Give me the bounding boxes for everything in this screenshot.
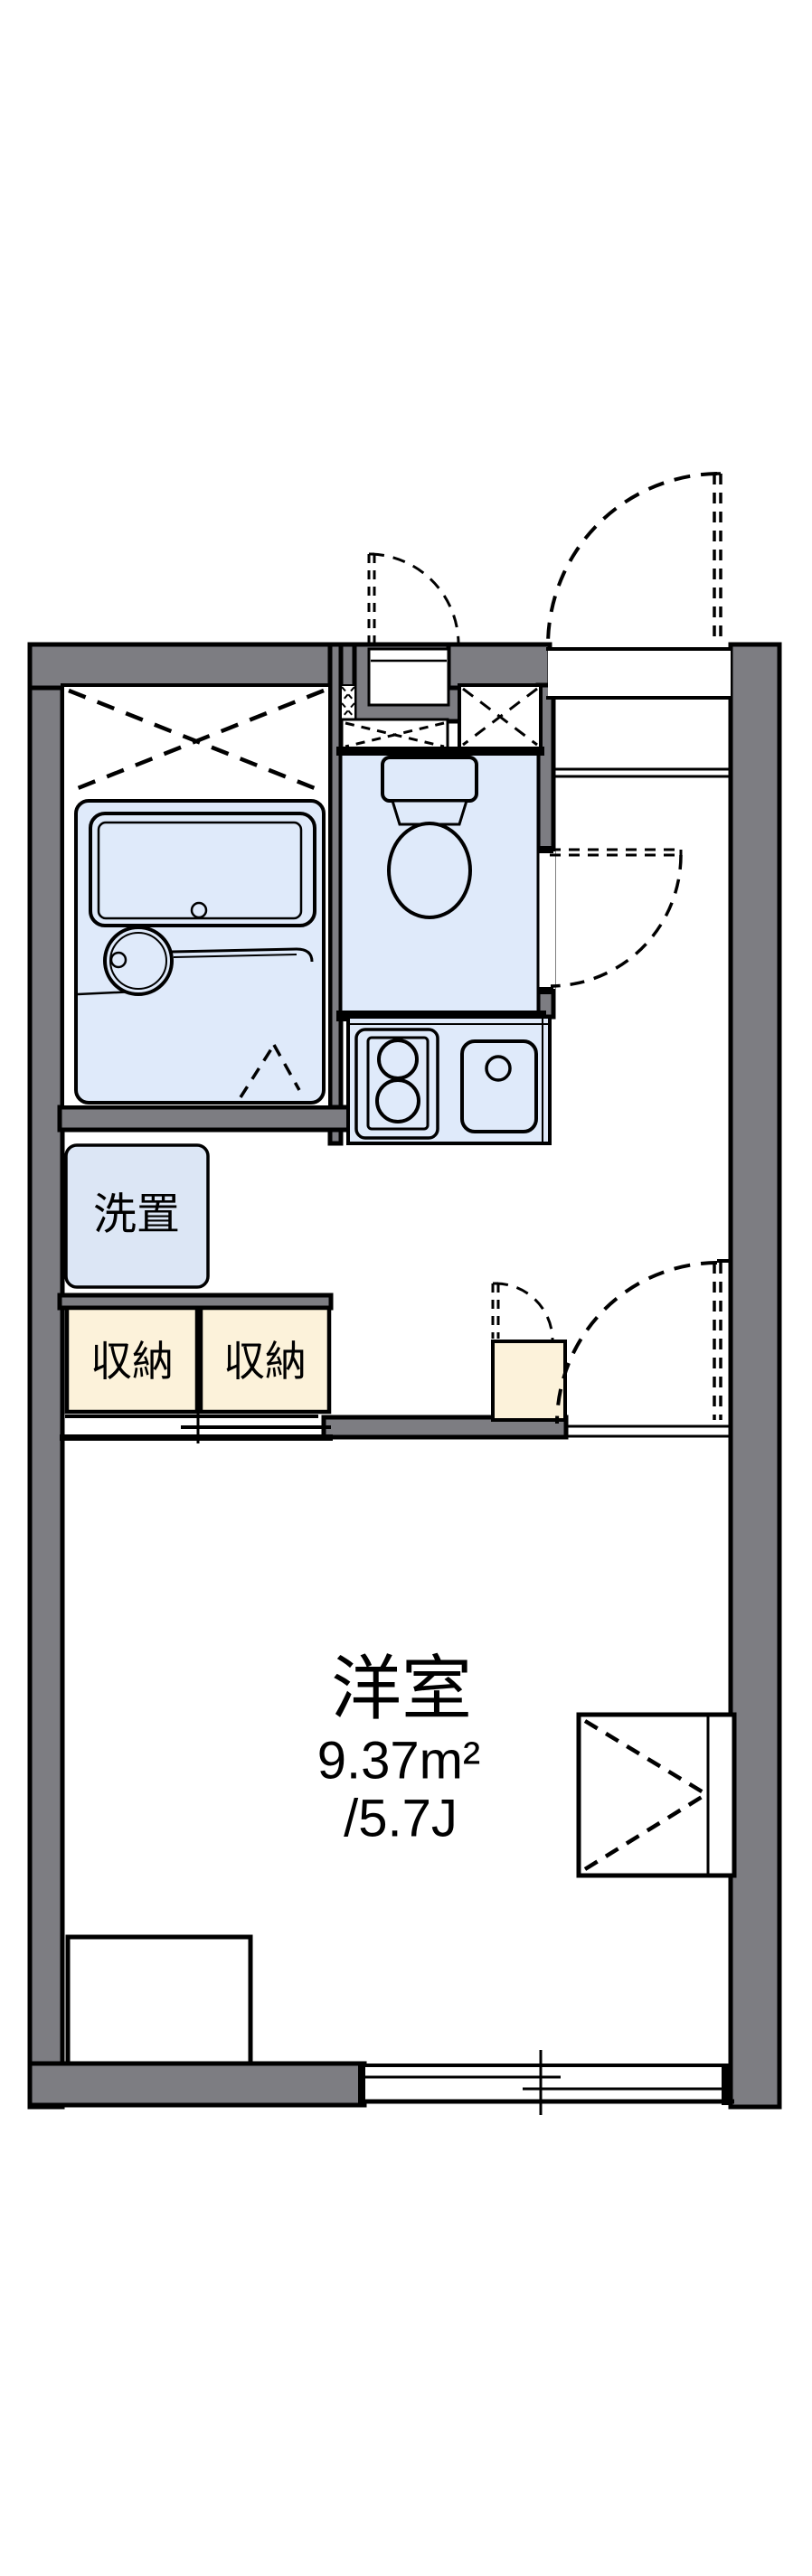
entrance-doorway (548, 647, 731, 700)
wall-bath-bottom (60, 1107, 354, 1130)
wall-top-left (30, 644, 369, 688)
bathtub-drain (192, 903, 206, 917)
wall-bottom (30, 2064, 364, 2105)
toilet-door-swing (550, 850, 681, 986)
furniture-outline (68, 1937, 250, 2064)
wall-left (30, 644, 62, 2107)
storage: 収納 収納 (60, 1308, 333, 1443)
entrance-door-swing (548, 474, 721, 644)
balcony-window (358, 2050, 734, 2115)
room-door-threshold (566, 1426, 731, 1436)
main-room-label: 洋室 (331, 1649, 472, 1728)
wall-top-mid (448, 644, 550, 688)
room-door-swing (557, 1261, 731, 1424)
kitchen (348, 1017, 550, 1143)
room-top-edge-bar (60, 1434, 333, 1441)
kitchen-faucet (486, 1057, 510, 1080)
toilet-seat (392, 801, 467, 824)
side-shelf-box (579, 1715, 734, 1876)
wall-right (731, 644, 779, 2107)
burner-1 (379, 1040, 417, 1078)
kitchen-sink (462, 1041, 536, 1132)
toilet-room (336, 685, 681, 1021)
utility-box (493, 1341, 565, 1420)
entrance-niche (369, 649, 448, 705)
entrance-step-edge (553, 769, 731, 776)
utility-door-swing (493, 1283, 552, 1340)
niche-door-swing (369, 554, 458, 643)
floor-plan-page: 洗置 収納 収納 (0, 0, 812, 2576)
bath-sink-drain (111, 953, 126, 967)
storage-label-2: 収納 (223, 1338, 307, 1385)
burner-2 (377, 1080, 419, 1122)
main-room: 洋室 9.37m² /5.7J (68, 1649, 734, 2115)
washer-space-label: 洗置 (93, 1191, 180, 1239)
main-room-area-sqm: 9.37m² (317, 1732, 481, 1791)
washer-space: 洗置 (66, 1145, 208, 1287)
bathroom (62, 685, 330, 1107)
cabinet-divider-bar (336, 747, 544, 756)
toilet-tank (382, 757, 477, 801)
storage-label-1: 収納 (90, 1338, 174, 1385)
floor-plan-drawing: 洗置 収納 収納 (0, 0, 812, 2576)
main-room-area-jo: /5.7J (344, 1790, 458, 1848)
toilet-bowl (389, 823, 470, 917)
